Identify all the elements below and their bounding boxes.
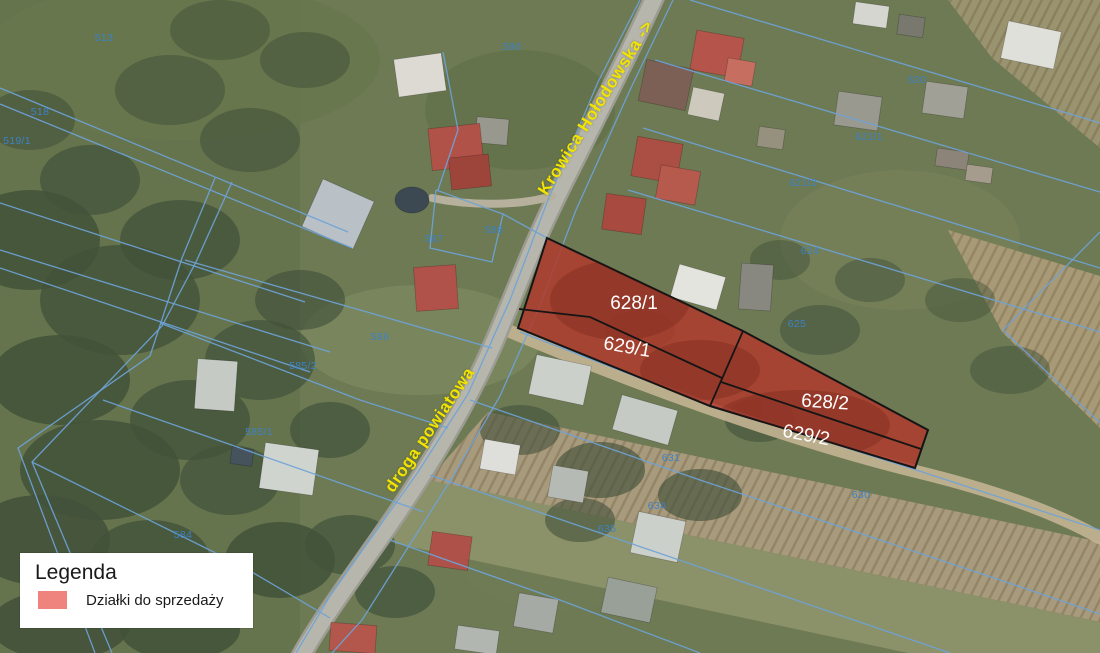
legend-box: Legenda Działki do sprzedaży [20,553,253,628]
legend-swatch-sale-parcels [38,591,67,609]
map-canvas: 513518519/1590587588586585/2585/15846206… [0,0,1100,653]
legend-item-label: Działki do sprzedaży [86,592,224,609]
legend-item: Działki do sprzedaży [38,591,253,609]
legend-title: Legenda [35,561,253,585]
